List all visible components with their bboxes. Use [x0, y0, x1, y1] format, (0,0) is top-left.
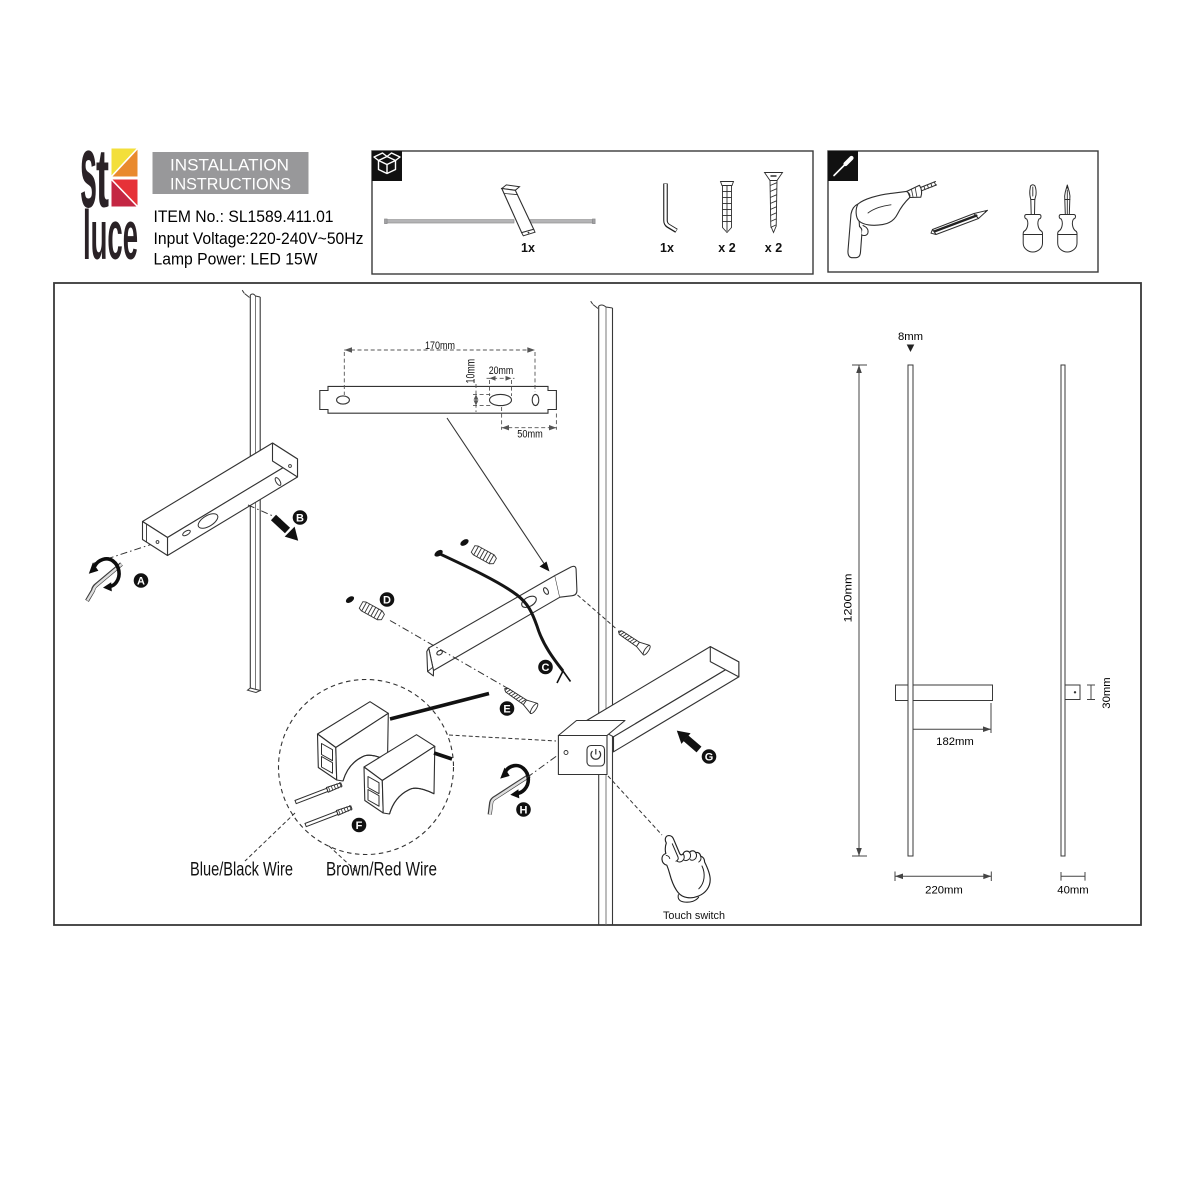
svg-text:INSTRUCTIONS: INSTRUCTIONS [170, 175, 291, 194]
svg-text:C: C [542, 662, 550, 674]
svg-text:E: E [503, 704, 510, 716]
svg-text:F: F [356, 820, 363, 832]
svg-text:luce: luce [83, 196, 138, 274]
svg-text:1x: 1x [521, 241, 535, 255]
svg-text:H: H [520, 805, 528, 817]
svg-text:170mm: 170mm [425, 340, 455, 352]
svg-text:Input Voltage:220-240V~50Hz: Input Voltage:220-240V~50Hz [154, 230, 364, 248]
svg-text:10mm: 10mm [464, 359, 478, 384]
svg-text:x 2: x 2 [718, 241, 735, 255]
svg-text:8mm: 8mm [898, 331, 923, 343]
svg-text:1200mm: 1200mm [843, 574, 855, 623]
svg-text:220mm: 220mm [925, 885, 963, 897]
svg-text:Blue/Black Wire: Blue/Black Wire [190, 860, 293, 881]
svg-text:Brown/Red Wire: Brown/Red Wire [326, 860, 437, 881]
svg-text:30mm: 30mm [1101, 677, 1113, 708]
svg-text:INSTALLATION: INSTALLATION [170, 156, 289, 175]
svg-text:ITEM No.: SL1589.411.01: ITEM No.: SL1589.411.01 [154, 208, 334, 226]
svg-text:Touch switch: Touch switch [663, 910, 725, 922]
svg-text:B: B [296, 513, 304, 525]
svg-text:G: G [705, 752, 714, 764]
svg-text:Lamp Power: LED 15W: Lamp Power: LED 15W [154, 251, 319, 269]
svg-text:20mm: 20mm [489, 365, 514, 377]
svg-text:50mm: 50mm [517, 429, 543, 441]
svg-text:40mm: 40mm [1057, 885, 1088, 897]
svg-text:A: A [137, 576, 145, 588]
svg-text:D: D [383, 595, 391, 607]
svg-text:1x: 1x [660, 241, 674, 255]
svg-text:182mm: 182mm [936, 736, 974, 748]
svg-text:x 2: x 2 [765, 241, 782, 255]
